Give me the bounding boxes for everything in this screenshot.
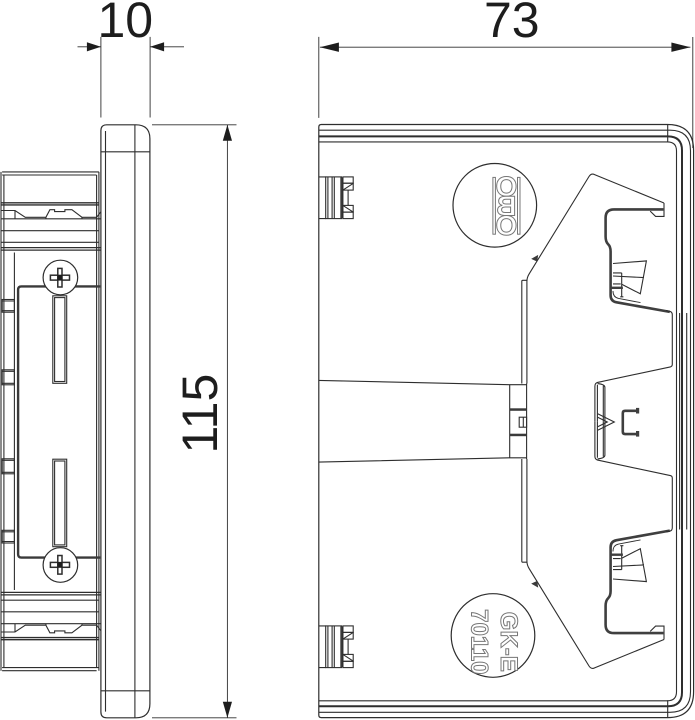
svg-text:70110: 70110 [466, 609, 493, 674]
svg-text:GK-E: GK-E [495, 612, 522, 672]
svg-text:10: 10 [97, 0, 153, 48]
svg-text:73: 73 [484, 0, 540, 48]
svg-text:115: 115 [172, 374, 228, 454]
svg-text:O: O [496, 210, 518, 241]
